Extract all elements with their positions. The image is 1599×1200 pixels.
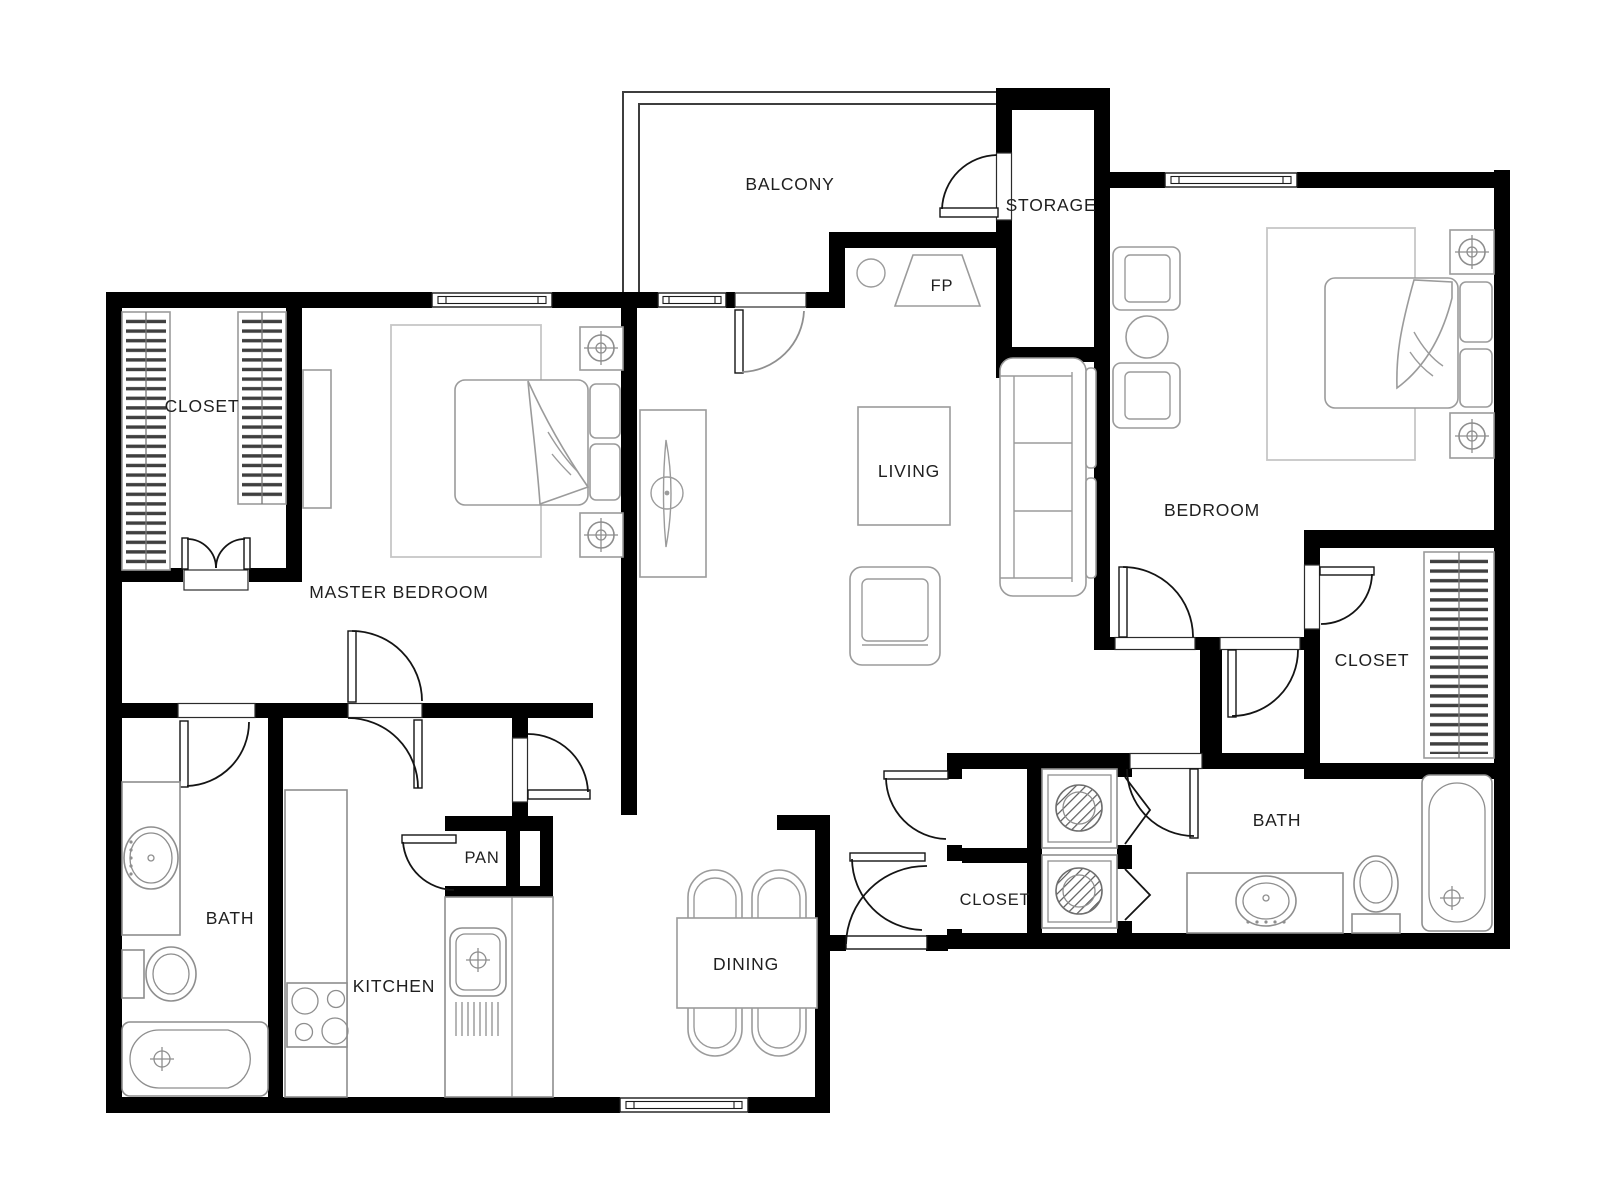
- door-sill: [1305, 565, 1320, 629]
- sitting-armchair: [1113, 247, 1180, 310]
- wall-segment: [512, 718, 528, 740]
- wall-segment: [1304, 548, 1320, 567]
- door-sill: [735, 293, 806, 307]
- pillow: [1460, 349, 1492, 407]
- laundry-closet: [1042, 769, 1117, 928]
- wall-segment: [1117, 769, 1132, 777]
- door-sill: [1130, 754, 1202, 769]
- pillow: [1460, 282, 1492, 342]
- bedroom-closet-fittings: [1424, 552, 1494, 758]
- door-sill: [178, 704, 255, 718]
- room-label-storage: STORAGE: [1006, 195, 1097, 215]
- wall-segment: [947, 933, 1510, 949]
- wall-segment: [829, 248, 845, 308]
- floor-plan: BALCONY STORAGE FP LIVING BEDROOM CLOSET…: [0, 0, 1599, 1200]
- wall-segment: [947, 845, 962, 861]
- wall-segment: [726, 292, 735, 308]
- window: [432, 293, 552, 307]
- wall-segment: [286, 308, 302, 582]
- window: [1165, 173, 1297, 187]
- dresser: [303, 370, 331, 508]
- toilet-tank: [1352, 914, 1400, 933]
- wall-segment: [445, 886, 553, 897]
- bathtub: [122, 1022, 268, 1096]
- wall-segment: [829, 232, 1012, 248]
- wall-segment: [1297, 172, 1510, 188]
- armchair: [850, 567, 940, 665]
- wall-segment: [506, 831, 520, 886]
- wall-segment: [420, 703, 593, 718]
- room-label-master-bath: BATH: [206, 908, 255, 928]
- wall-segment: [996, 110, 1012, 155]
- wall-segment: [947, 769, 962, 779]
- room-label-master-bedroom: MASTER BEDROOM: [309, 582, 488, 602]
- room-label-bedroom: BEDROOM: [1164, 500, 1260, 520]
- kitchen-counter-right: [445, 897, 553, 1097]
- pillow: [590, 384, 620, 438]
- room-label-bath: BATH: [1253, 810, 1302, 830]
- wall-segment: [552, 292, 658, 308]
- wall-segment: [1494, 170, 1510, 949]
- sitting-armchair: [1113, 363, 1180, 428]
- wall-segment: [777, 815, 815, 830]
- door-sill: [1115, 638, 1195, 650]
- wall-segment: [828, 935, 846, 951]
- door-sill: [184, 570, 248, 590]
- wall-segment: [445, 816, 553, 831]
- stove: [287, 983, 347, 1047]
- window: [658, 293, 726, 307]
- wall-segment: [996, 88, 1110, 110]
- wall-segment: [1094, 637, 1117, 650]
- wall-segment: [1193, 637, 1222, 650]
- wall-segment: [106, 292, 432, 308]
- room-label-hall-closet: CLOSET: [960, 891, 1031, 909]
- tv-console: [640, 410, 706, 577]
- wall-segment: [106, 1097, 620, 1113]
- wall-segment: [249, 568, 302, 582]
- wall-segment: [1117, 845, 1132, 869]
- wall-segment: [1117, 921, 1132, 935]
- door-sill: [348, 704, 422, 718]
- wall-segment: [1304, 530, 1510, 548]
- room-label-balcony: BALCONY: [745, 174, 834, 194]
- pillow: [590, 444, 620, 500]
- washer: [1042, 769, 1117, 848]
- sofa: [1000, 358, 1096, 596]
- room-label-pantry: PAN: [464, 849, 499, 867]
- wall-segment: [962, 848, 1027, 863]
- room-label-bedroom-closet: CLOSET: [1335, 650, 1410, 670]
- wall-segment: [926, 935, 948, 951]
- side-table: [1126, 316, 1168, 358]
- room-label-dining: DINING: [713, 954, 779, 974]
- door-sill: [513, 738, 528, 802]
- wall-segment: [106, 292, 122, 1113]
- door-sill: [1220, 638, 1300, 650]
- wall-segment: [268, 718, 283, 1097]
- wall-segment: [106, 703, 180, 718]
- tv-mount-dot: [665, 491, 670, 496]
- kitchen-counter-left: [285, 790, 347, 1097]
- window: [620, 1098, 748, 1112]
- wall-segment: [540, 831, 553, 886]
- floor-plan-drawing: BALCONY STORAGE FP LIVING BEDROOM CLOSET…: [0, 0, 1599, 1200]
- wall-segment: [253, 703, 350, 718]
- toilet-tank: [122, 950, 144, 998]
- wall-segment: [1200, 650, 1222, 763]
- room-label-kitchen: KITCHEN: [353, 976, 435, 996]
- wall-segment: [947, 753, 1132, 769]
- dryer: [1042, 855, 1117, 928]
- room-label-master-closet: CLOSET: [165, 396, 240, 416]
- room-label-fireplace: FP: [931, 277, 954, 295]
- room-label-living: LIVING: [878, 461, 940, 481]
- wall-segment: [1304, 627, 1320, 763]
